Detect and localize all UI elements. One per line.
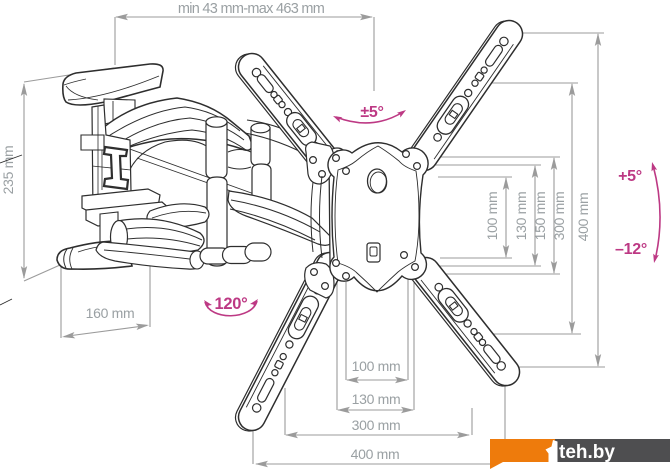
svg-text:150 mm: 150 mm	[532, 192, 548, 241]
svg-text:300 mm: 300 mm	[352, 417, 401, 433]
svg-text:130 mm: 130 mm	[513, 192, 529, 241]
svg-text:120°: 120°	[215, 295, 248, 313]
svg-text:100 mm: 100 mm	[352, 358, 401, 374]
svg-text:130 mm: 130 mm	[352, 391, 401, 407]
svg-text:400 mm: 400 mm	[351, 446, 400, 462]
svg-text:+5°: +5°	[618, 168, 642, 185]
svg-text:400 mm: 400 mm	[575, 193, 591, 242]
svg-text:160 mm: 160 mm	[86, 305, 135, 321]
svg-text:±5°: ±5°	[360, 104, 383, 121]
svg-text:min 43 mm-max 463 mm: min 43 mm-max 463 mm	[178, 1, 325, 17]
svg-text:300 mm: 300 mm	[551, 192, 567, 241]
svg-text:–12°: –12°	[615, 241, 647, 258]
svg-text:teh.by: teh.by	[559, 442, 615, 463]
svg-text:235 mm: 235 mm	[0, 146, 16, 195]
svg-text:100 mm: 100 mm	[484, 192, 500, 241]
